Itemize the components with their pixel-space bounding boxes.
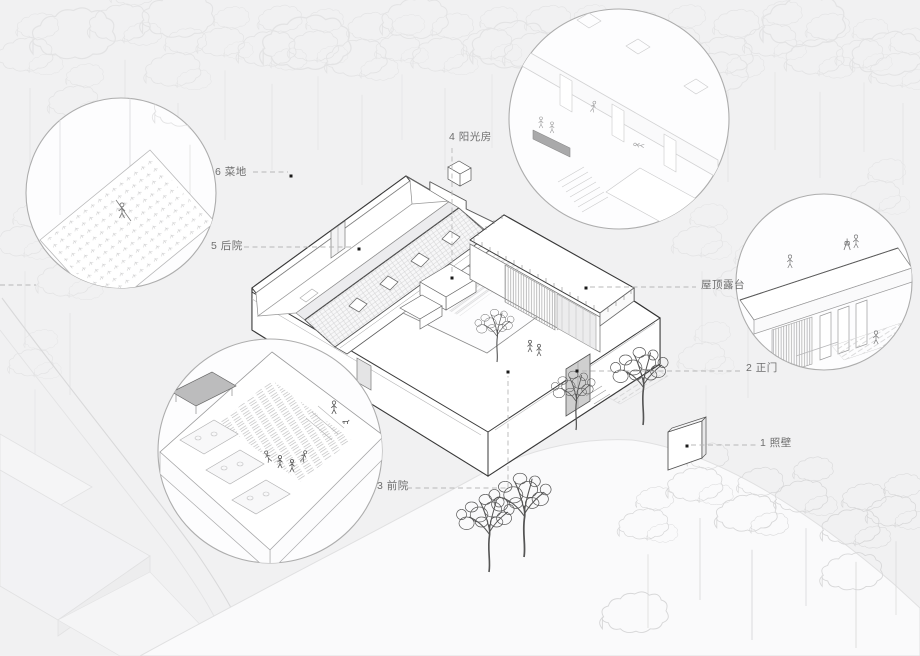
site-illustration: [0, 0, 920, 656]
label-sunroom: 4 阳光房: [449, 131, 492, 144]
roof-box: [448, 161, 471, 186]
label-screen-wall: 1 照壁: [760, 437, 792, 450]
label-back-yard: 5 后院: [211, 240, 243, 253]
callout-vegetable-garden: [19, 0, 227, 312]
diagram-canvas: 6 菜地 5 后院 4 阳光房 屋顶露台 2 正门 1 照壁 3 前院: [0, 0, 920, 656]
callout-front-yard: [158, 339, 384, 572]
label-front-yard: 3 前院: [377, 480, 409, 493]
callout-sunroom: [509, 9, 729, 229]
label-main-gate: 2 正门: [746, 362, 778, 375]
label-roof-terrace: 屋顶露台: [701, 279, 745, 292]
callout-roof-terrace: [736, 194, 916, 377]
label-vegetable-garden: 6 菜地: [215, 166, 247, 179]
